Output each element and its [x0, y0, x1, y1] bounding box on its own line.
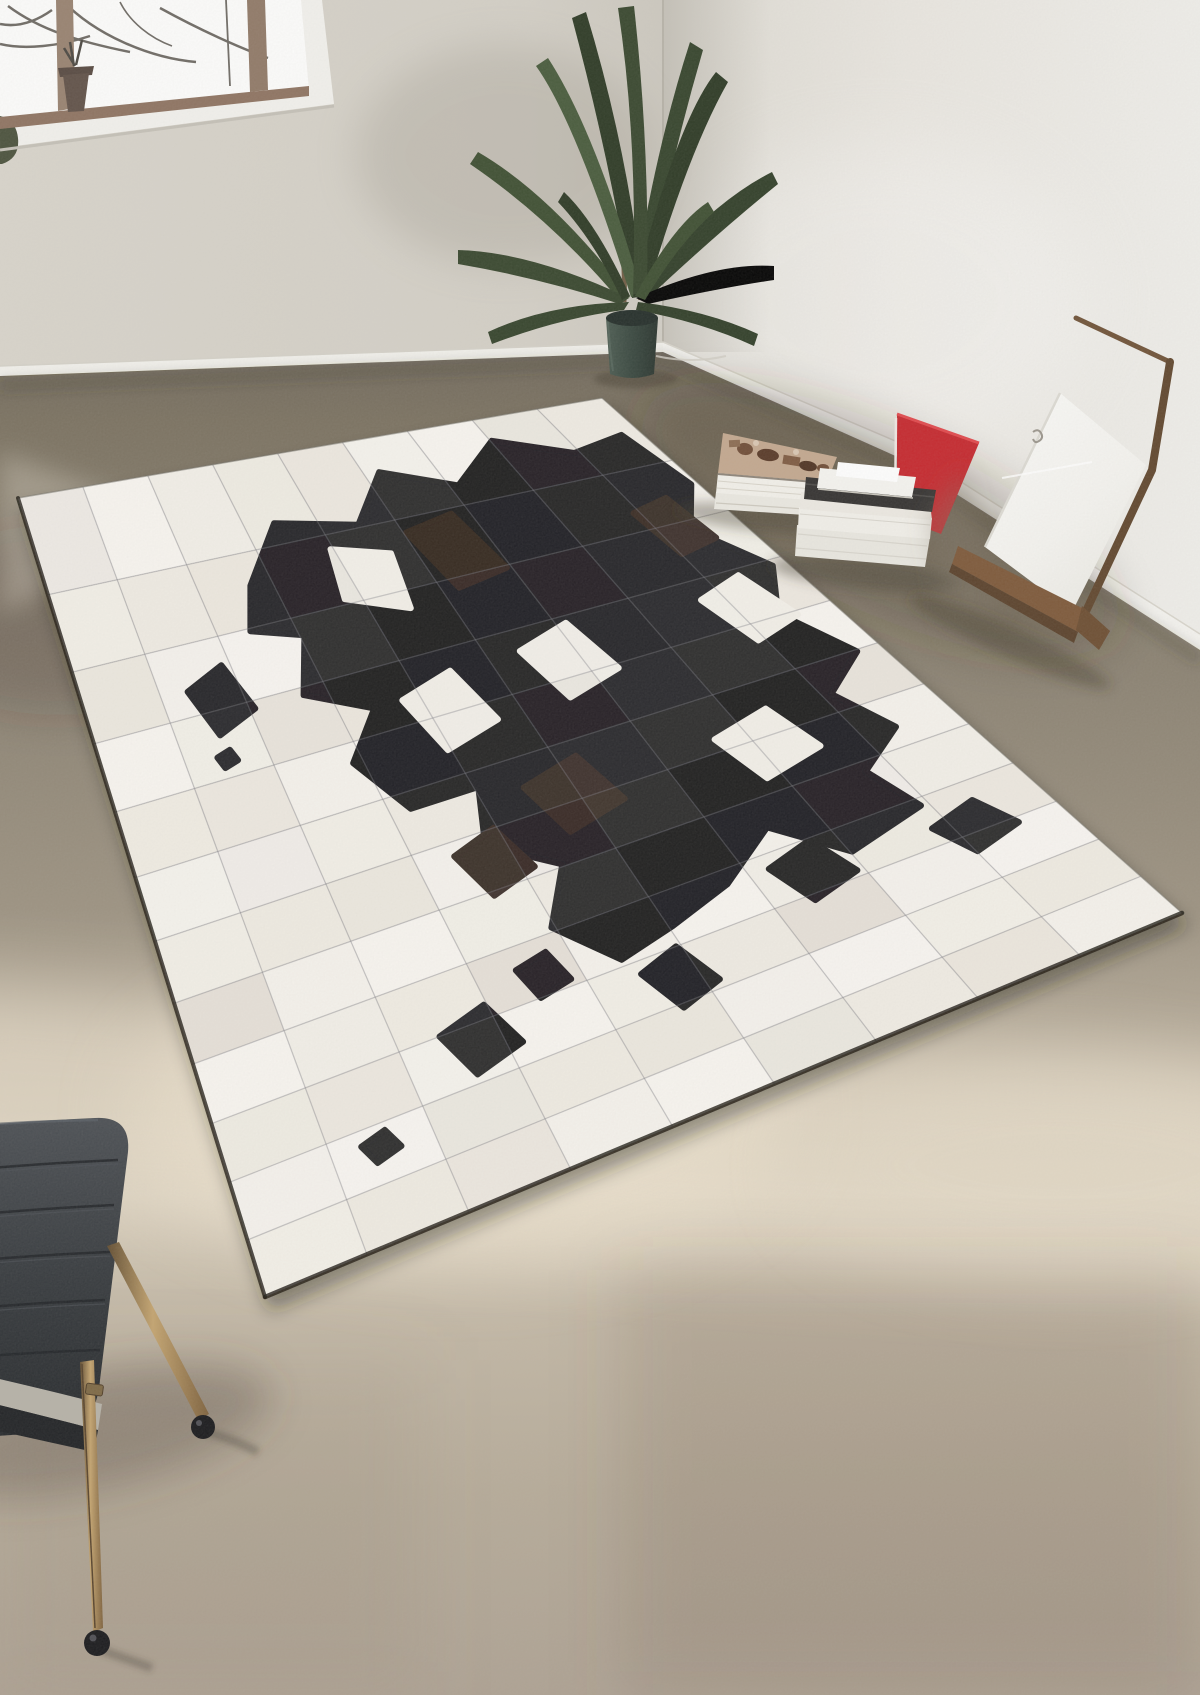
room-photo [0, 0, 1200, 1695]
photo-grain [0, 0, 1200, 1695]
